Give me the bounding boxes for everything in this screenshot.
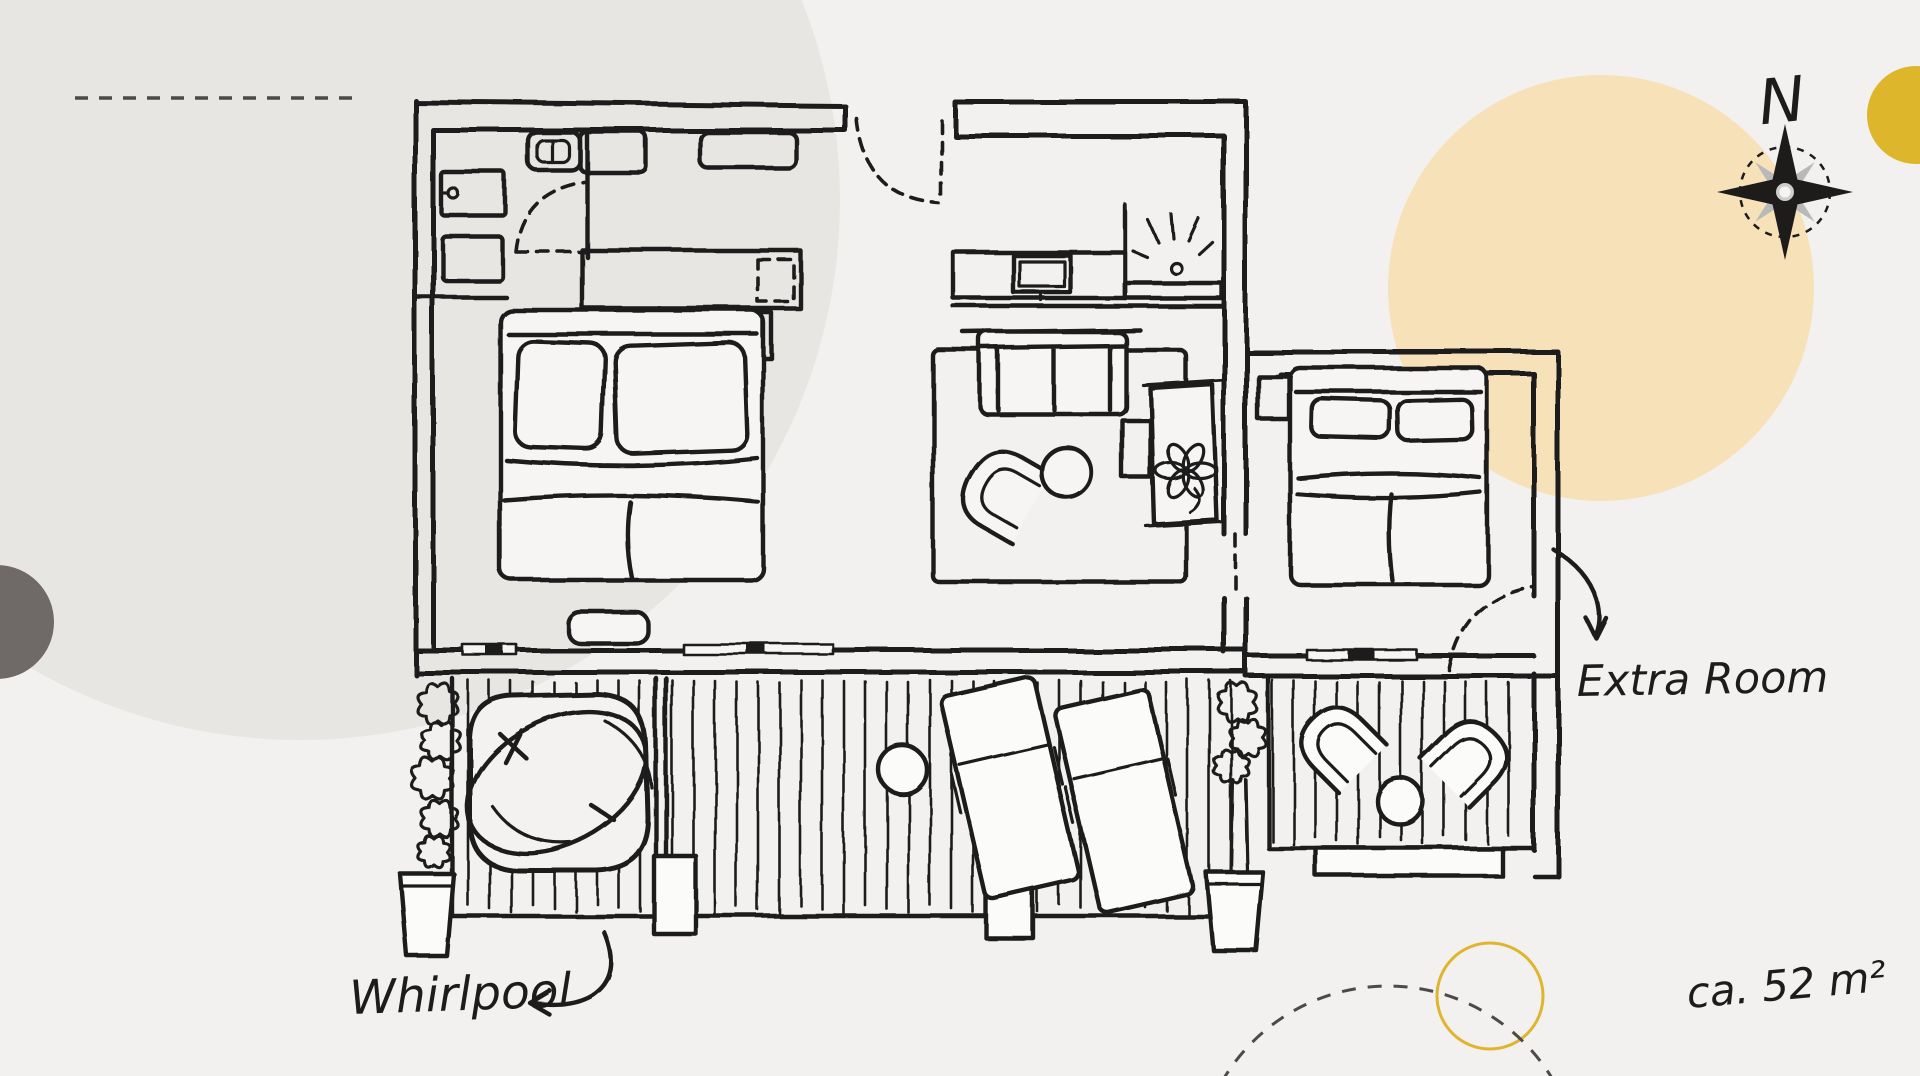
extra-room-arrow xyxy=(1553,549,1606,638)
living-room xyxy=(933,205,1222,582)
shelf xyxy=(1125,283,1222,298)
deck-step xyxy=(1316,848,1502,876)
double-bed xyxy=(500,310,763,580)
side-shelf xyxy=(1122,420,1150,477)
extra-room xyxy=(1258,368,1487,584)
coffee-table xyxy=(1042,448,1092,498)
nightstand xyxy=(1258,376,1289,419)
bench xyxy=(568,612,648,643)
floor-plan-canvas: Whirlpool Extra Room ca. 52 m² N xyxy=(0,0,1920,1076)
armchair xyxy=(951,439,1053,544)
deck-step xyxy=(654,856,696,934)
area-label: ca. 52 m² xyxy=(1685,952,1889,1018)
plant-pot xyxy=(1206,683,1265,950)
extra-room-label: Extra Room xyxy=(1576,653,1828,707)
sideboard-with-plant xyxy=(1143,380,1222,526)
dashed-circle xyxy=(1196,986,1580,1076)
side-table xyxy=(879,746,927,794)
deck-chair xyxy=(1421,709,1519,807)
whirlpool-tub xyxy=(443,682,671,882)
whirlpool-label: Whirlpool xyxy=(348,963,572,1026)
ceiling-light-icon xyxy=(1133,214,1212,274)
sofa xyxy=(964,330,1140,414)
yellow-circle xyxy=(1867,66,1920,164)
deck-chair xyxy=(1289,695,1387,793)
entry-door-arc xyxy=(856,118,941,204)
compass-north-label: N xyxy=(1755,62,1809,139)
floor-plan-page: Whirlpool Extra Room ca. 52 m² N xyxy=(0,0,1920,1076)
